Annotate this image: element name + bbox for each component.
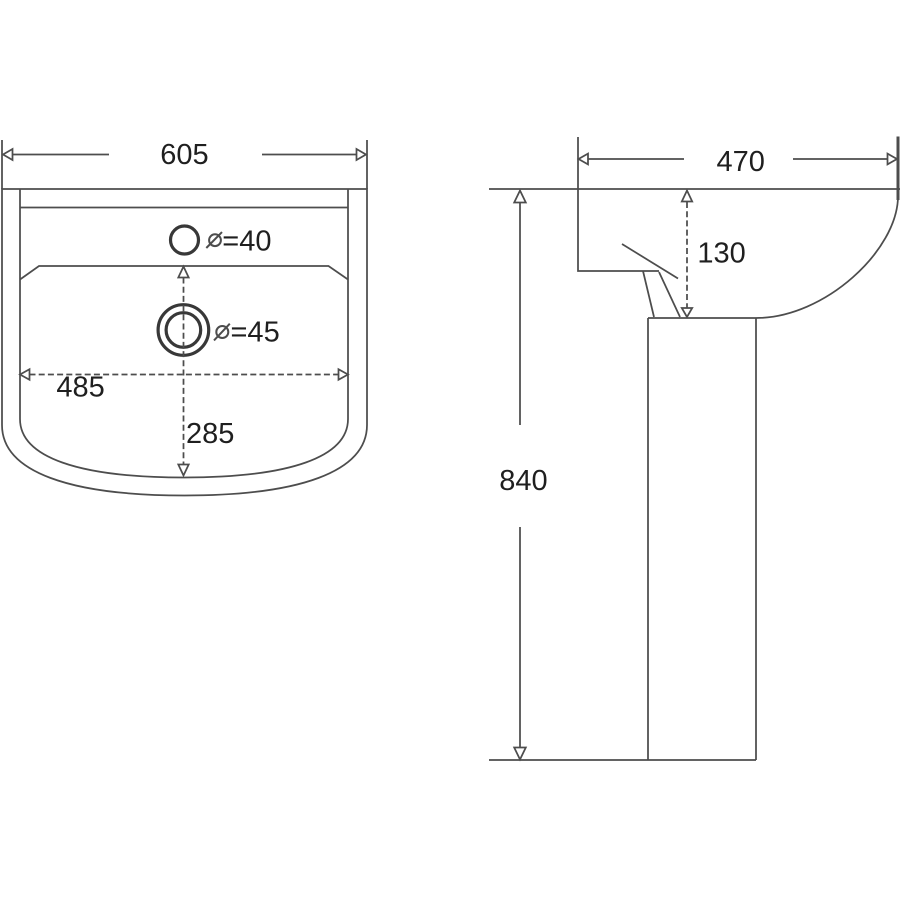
svg-text:840: 840 [499, 465, 547, 497]
svg-text:605: 605 [160, 139, 208, 171]
svg-text:470: 470 [717, 146, 765, 178]
svg-text:130: 130 [697, 238, 745, 270]
svg-text:=40: =40 [222, 225, 271, 257]
svg-text:285: 285 [186, 418, 234, 450]
svg-text:485: 485 [56, 372, 104, 404]
svg-text:=45: =45 [231, 317, 280, 349]
